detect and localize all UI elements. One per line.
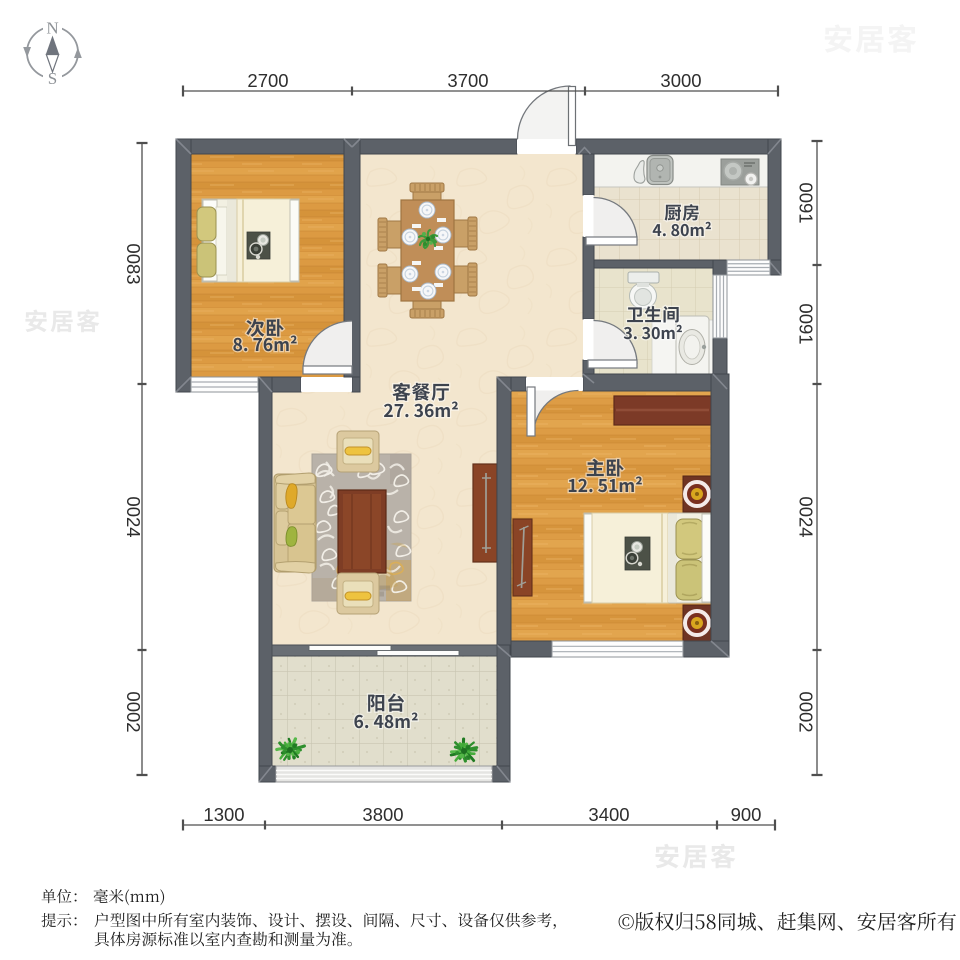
svg-text:0091: 0091 [796, 182, 817, 223]
svg-text:3400: 3400 [588, 804, 629, 825]
svg-text:S: S [48, 69, 57, 88]
svg-text:0024: 0024 [123, 496, 144, 537]
svg-text:0024: 0024 [796, 496, 817, 537]
svg-text:2700: 2700 [247, 70, 288, 91]
svg-text:0002: 0002 [796, 691, 817, 732]
svg-text:3000: 3000 [660, 70, 701, 91]
svg-text:0091: 0091 [796, 303, 817, 344]
svg-text:3700: 3700 [447, 70, 488, 91]
svg-text:1300: 1300 [203, 804, 244, 825]
svg-text:N: N [46, 19, 58, 38]
svg-text:900: 900 [731, 804, 762, 825]
svg-text:3800: 3800 [362, 804, 403, 825]
svg-text:0083: 0083 [123, 243, 144, 284]
svg-text:0002: 0002 [123, 691, 144, 732]
